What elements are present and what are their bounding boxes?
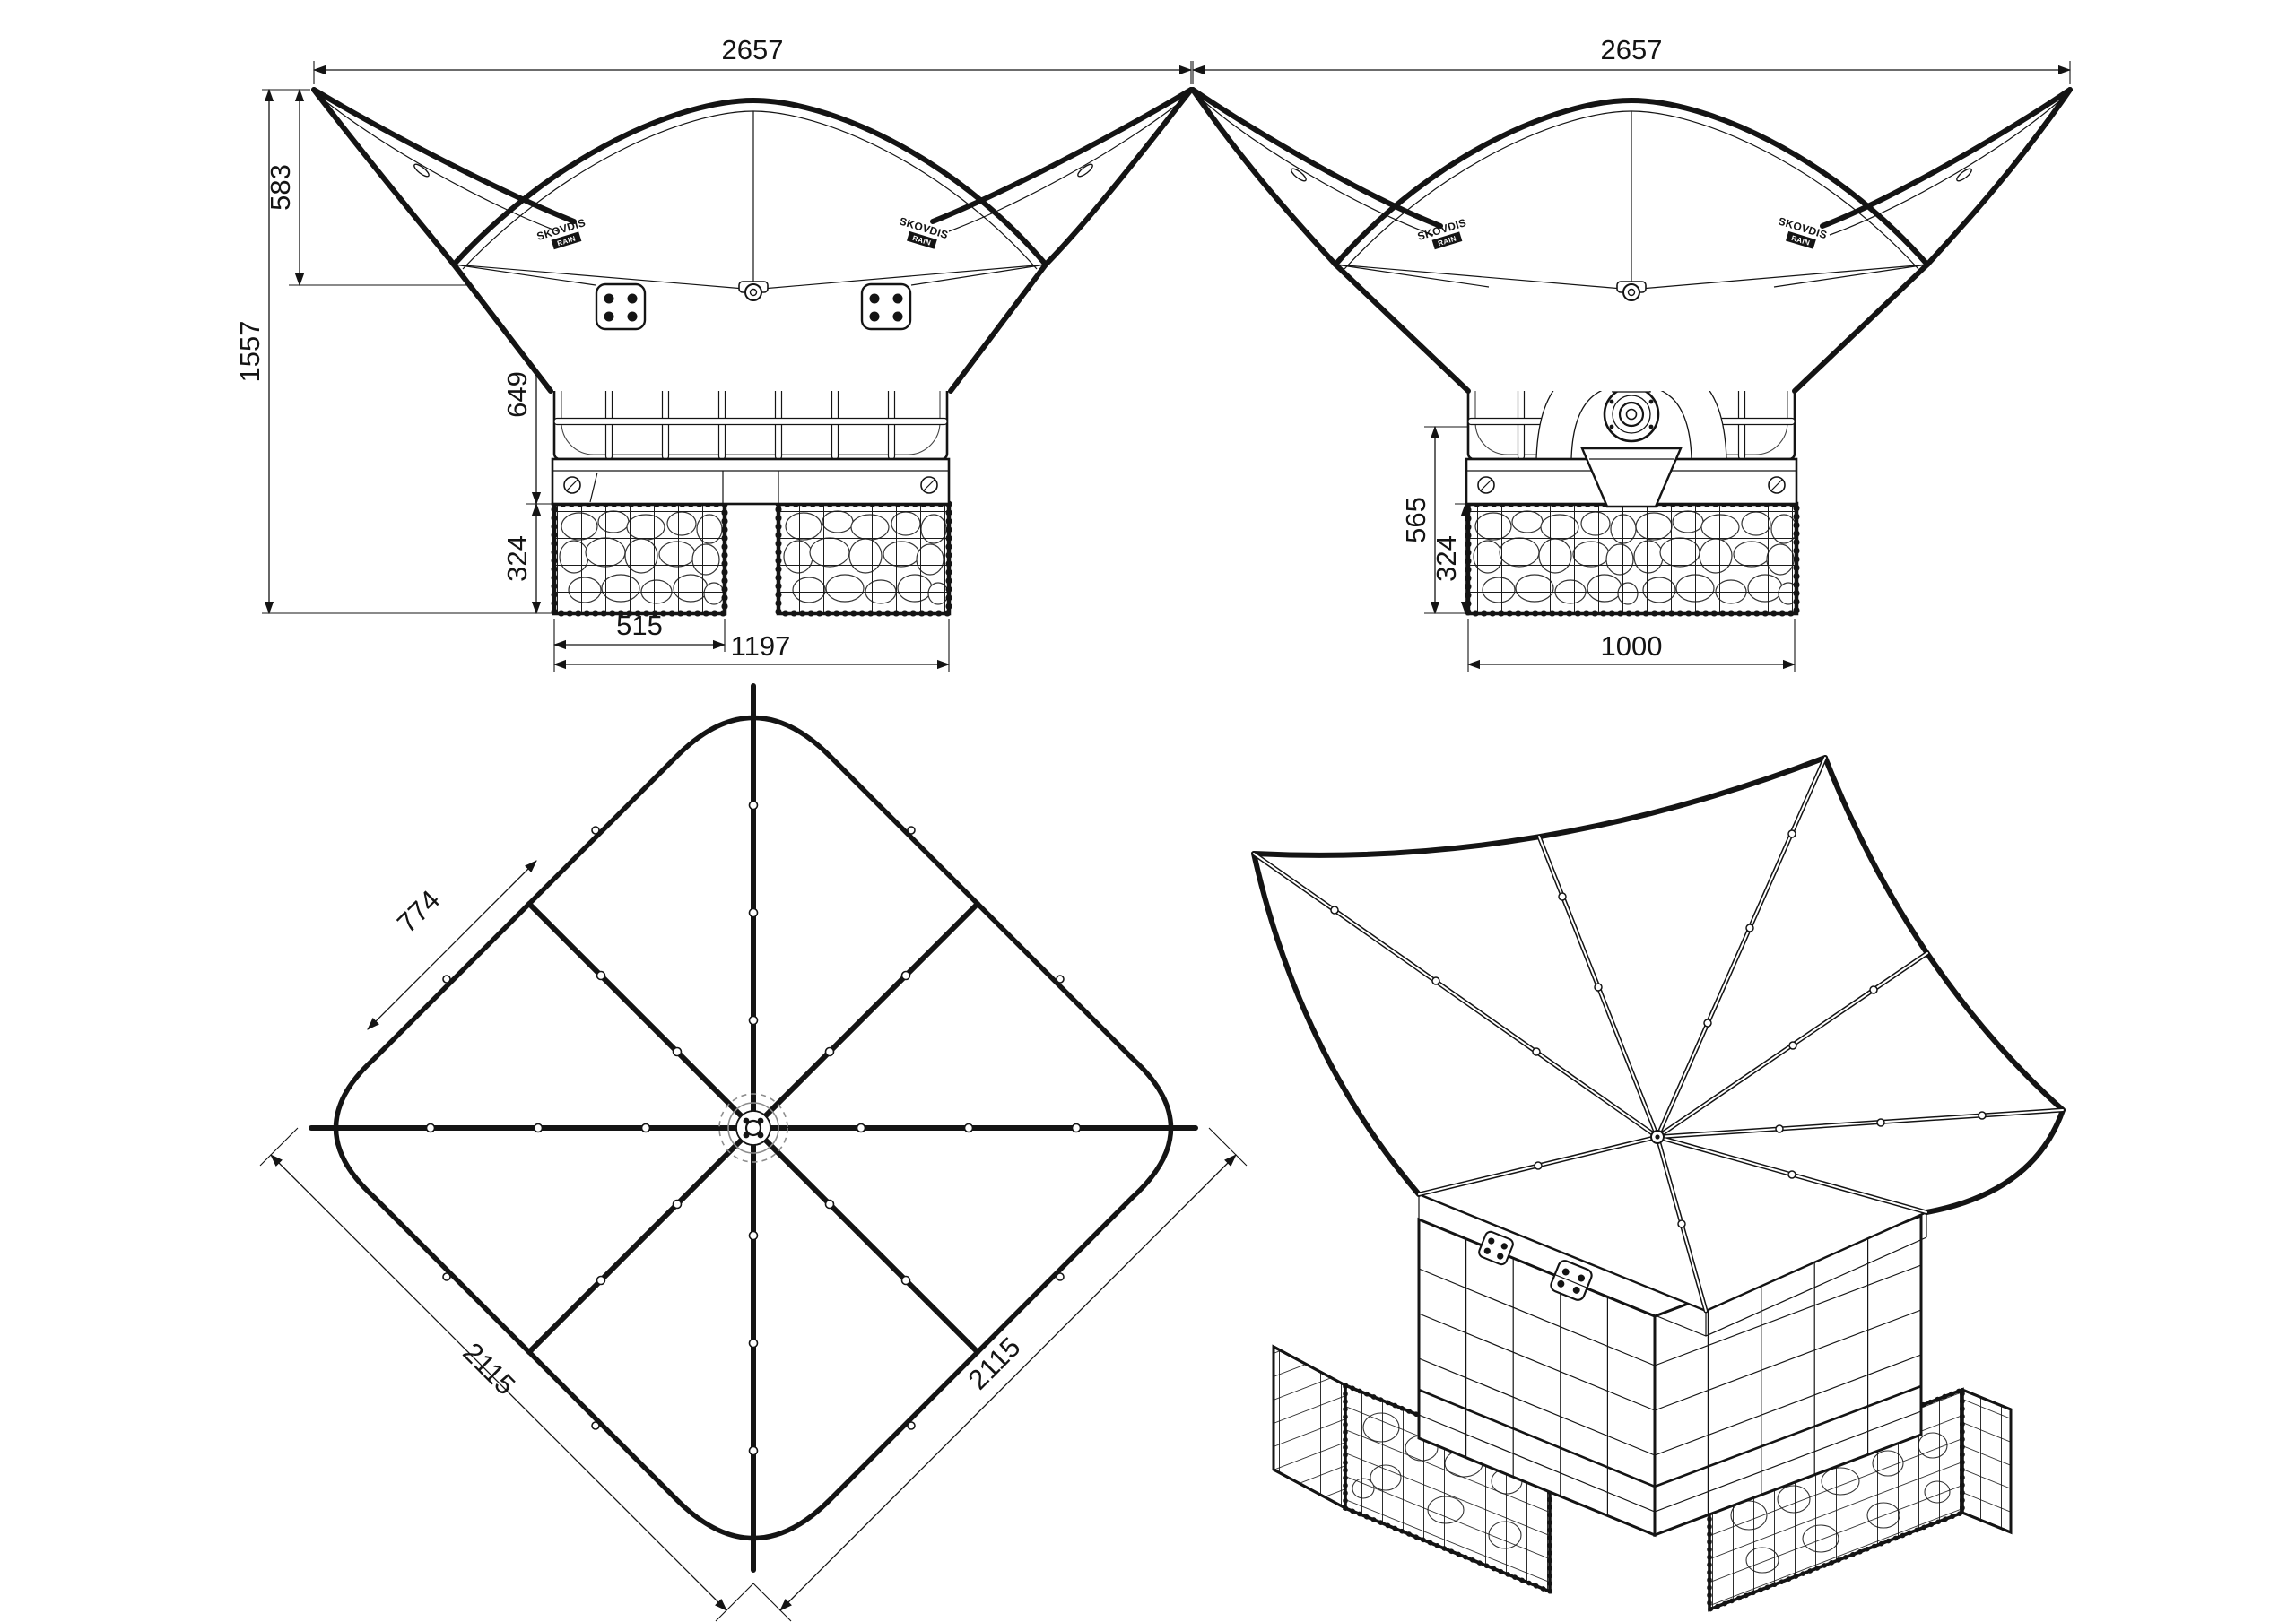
pallet-base [552,459,949,504]
canopy-drain-hub [1651,1131,1664,1143]
dim-front-overall-height: 1557 [234,321,265,383]
dim-side-outlet-height: 565 [1400,497,1431,543]
corner-bolt-plate [596,284,645,329]
dim-front-canopy-height: 583 [265,164,296,211]
pallet-screw [1478,477,1494,493]
dim-side-base-width: 1000 [1601,630,1663,662]
corner-bolt-plate [862,284,910,329]
plan-view: 774 2115 2115 [260,686,1247,1621]
drawing-canvas: 2657 1557 583 649 324 515 1197 [0,0,2296,1622]
pallet-screw [564,477,580,493]
dim-plan-panel-width: 774 [391,884,446,939]
front-view: 2657 1557 583 649 324 515 1197 [234,34,1191,672]
dim-front-base-height: 324 [501,535,533,582]
side-gabion-basket [1468,504,1798,613]
front-canopy: SKOVDIS RAIN SKOVDIS RAIN [314,90,1191,391]
dim-front-base-width: 1197 [731,630,791,662]
side-canopy: SKOVDIS RAIN SKOVDIS RAIN [1193,90,2070,391]
dim-side-base-height: 324 [1431,535,1462,582]
gabion-basket [778,504,949,613]
iso-canopy [1254,758,2063,1336]
side-view: 2657 565 324 1000 [1193,34,2070,672]
dim-front-overall-width: 2657 [722,34,784,65]
isometric-view [1254,758,2063,1609]
dim-front-tank-height: 649 [501,371,533,418]
pallet-screw [921,477,937,493]
gabion-basket [554,504,725,613]
front-gabion-baskets [554,504,949,613]
dim-side-overall-width: 2657 [1601,34,1663,65]
dim-plan-edge-left: 2115 [457,1337,521,1401]
pallet-screw [1769,477,1785,493]
technical-drawing-sheet: 2657 1557 583 649 324 515 1197 [0,0,2296,1622]
